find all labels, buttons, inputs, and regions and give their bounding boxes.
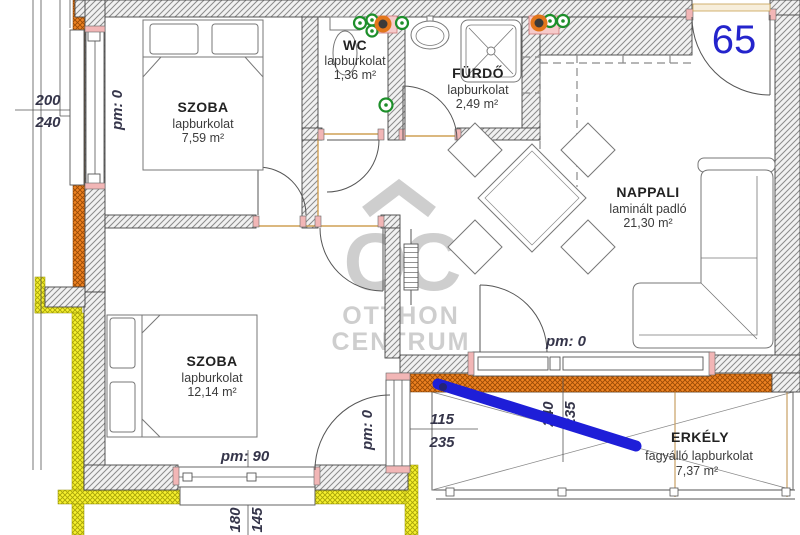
room-name: NAPPALI (616, 184, 679, 200)
room-area: 1,36 m² (334, 68, 376, 82)
room-label-szoba2: SZOBA lapburkolat 12,14 m² (181, 353, 243, 399)
blue-marker-origin (439, 383, 447, 391)
entry-door-leaf (693, 4, 770, 11)
szoba2-window (178, 467, 315, 505)
nappali-balcony-window (473, 352, 710, 376)
dim-szoba2-window-width: 180 (227, 507, 244, 533)
dim-szoba2-balcony-door-height: 235 (428, 434, 455, 451)
room-name: ERKÉLY (671, 429, 729, 445)
room-floor: lapburkolat (172, 117, 234, 131)
room-floor: lapburkolat (447, 83, 509, 97)
dim-szoba2-window-height: 145 (249, 507, 266, 533)
dim-szoba1-window-height: 240 (34, 114, 61, 131)
bed-szoba1 (143, 20, 263, 170)
room-name: WC (343, 37, 367, 53)
room-floor: laminált padló (609, 202, 686, 216)
dim-nappali-balcony-door-pm: pm: 0 (545, 333, 587, 350)
dim-szoba2-balcony-door-pm: pm: 0 (359, 409, 376, 451)
szoba2-balcony-door-frame (386, 380, 410, 466)
room-area: 2,49 m² (456, 97, 498, 111)
room-area: 12,14 m² (187, 385, 236, 399)
floor-plan-canvas: OC OTTHON CENTRUM (0, 0, 800, 535)
room-floor: fagyálló lapburkolat (645, 449, 753, 463)
szoba1-window (70, 30, 104, 185)
room-area: 21,30 m² (623, 216, 672, 230)
room-area: 7,59 m² (182, 131, 224, 145)
room-area: 7,37 m² (676, 464, 718, 478)
balcony-deck (432, 392, 795, 499)
watermark-monogram: OC (344, 217, 460, 308)
dim-szoba2-window-pm: pm: 90 (220, 448, 270, 465)
room-name: FÜRDŐ (452, 64, 504, 81)
room-name: SZOBA (178, 99, 229, 115)
room-floor: lapburkolat (324, 54, 386, 68)
floor-plan: OC OTTHON CENTRUM (0, 0, 800, 535)
dim-szoba2-balcony-door-width: 115 (430, 411, 455, 428)
watermark-brand-top: OTTHON (342, 302, 460, 330)
dim-szoba1-window-width: 200 (34, 92, 61, 109)
room-floor: lapburkolat (181, 371, 243, 385)
dim-szoba1-window-pm: pm: 0 (109, 89, 126, 131)
room-name: SZOBA (187, 353, 238, 369)
unit-number: 65 (712, 18, 757, 62)
watermark-brand-bottom: CENTRUM (332, 328, 471, 356)
